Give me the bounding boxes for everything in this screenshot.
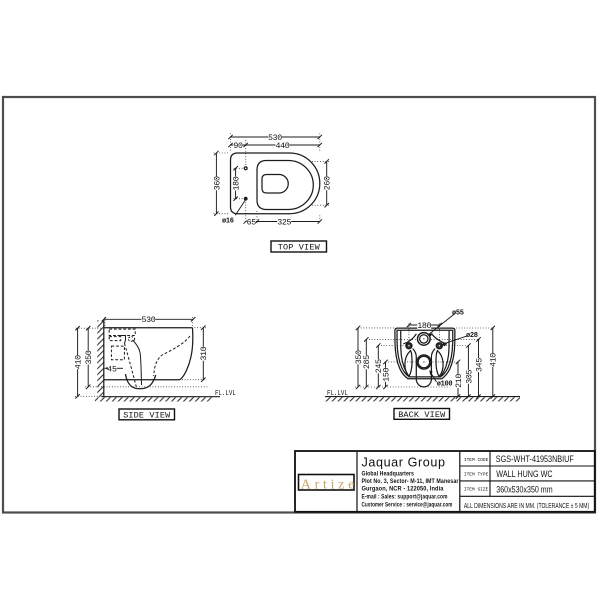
svg-text:Plot No. 3, Sector- M-11, IMT: Plot No. 3, Sector- M-11, IMT Manesar [362, 478, 459, 485]
svg-text:260: 260 [324, 176, 333, 190]
svg-text:310: 310 [200, 346, 209, 360]
svg-text:Gurgaon, NCR - 122050, India: Gurgaon, NCR - 122050, India [362, 486, 444, 493]
svg-text:ITEM TYPE: ITEM TYPE [464, 471, 488, 477]
svg-text:ITEM CODE: ITEM CODE [464, 457, 488, 463]
svg-text:Jaquar Group: Jaquar Group [362, 456, 446, 470]
svg-text:ø28: ø28 [466, 332, 478, 340]
svg-text:ALL DIMENSIONS ARE IN MM. (TOL: ALL DIMENSIONS ARE IN MM. (TOLERANCE ± 5… [464, 501, 589, 510]
svg-text:E-mail : Sales: support@jaquar: E-mail : Sales: support@jaquar.com [362, 493, 448, 500]
svg-text:210: 210 [455, 374, 464, 388]
svg-text:90: 90 [233, 142, 243, 151]
svg-text:410: 410 [74, 355, 83, 369]
svg-text:ø55: ø55 [452, 310, 464, 318]
svg-text:410: 410 [490, 353, 499, 367]
svg-text:TOP VIEW: TOP VIEW [278, 243, 321, 253]
svg-text:WALL HUNG WC: WALL HUNG WC [496, 469, 553, 479]
svg-text:180: 180 [417, 322, 431, 331]
svg-text:440: 440 [275, 142, 289, 151]
svg-text:345: 345 [475, 358, 484, 372]
svg-text:150: 150 [382, 367, 391, 381]
svg-text:FL.LVL: FL.LVL [215, 390, 236, 398]
svg-text:BACK VIEW: BACK VIEW [398, 410, 446, 420]
svg-text:ø16: ø16 [222, 218, 234, 226]
svg-text:65: 65 [247, 219, 257, 228]
svg-text:Customer Service : service@ja: Customer Service : service@jaquar.com [362, 502, 453, 509]
svg-text:285: 285 [363, 355, 372, 369]
svg-text:360x530x350 mm: 360x530x350 mm [496, 485, 552, 495]
svg-text:305: 305 [465, 369, 474, 383]
svg-text:Global Headquarters: Global Headquarters [362, 471, 415, 478]
svg-text:FL.LVL: FL.LVL [327, 390, 348, 398]
svg-text:SIDE VIEW: SIDE VIEW [123, 411, 171, 421]
svg-text:530: 530 [141, 316, 155, 325]
svg-text:SGS-WHT-41953NBIUF: SGS-WHT-41953NBIUF [496, 454, 575, 464]
svg-text:ø100: ø100 [437, 381, 453, 389]
svg-text:180: 180 [233, 176, 242, 190]
svg-text:350: 350 [85, 350, 94, 364]
svg-text:325: 325 [277, 219, 291, 228]
svg-text:ITEM SIZE: ITEM SIZE [464, 486, 488, 492]
svg-text:360: 360 [213, 176, 222, 190]
svg-text:45: 45 [107, 365, 117, 374]
